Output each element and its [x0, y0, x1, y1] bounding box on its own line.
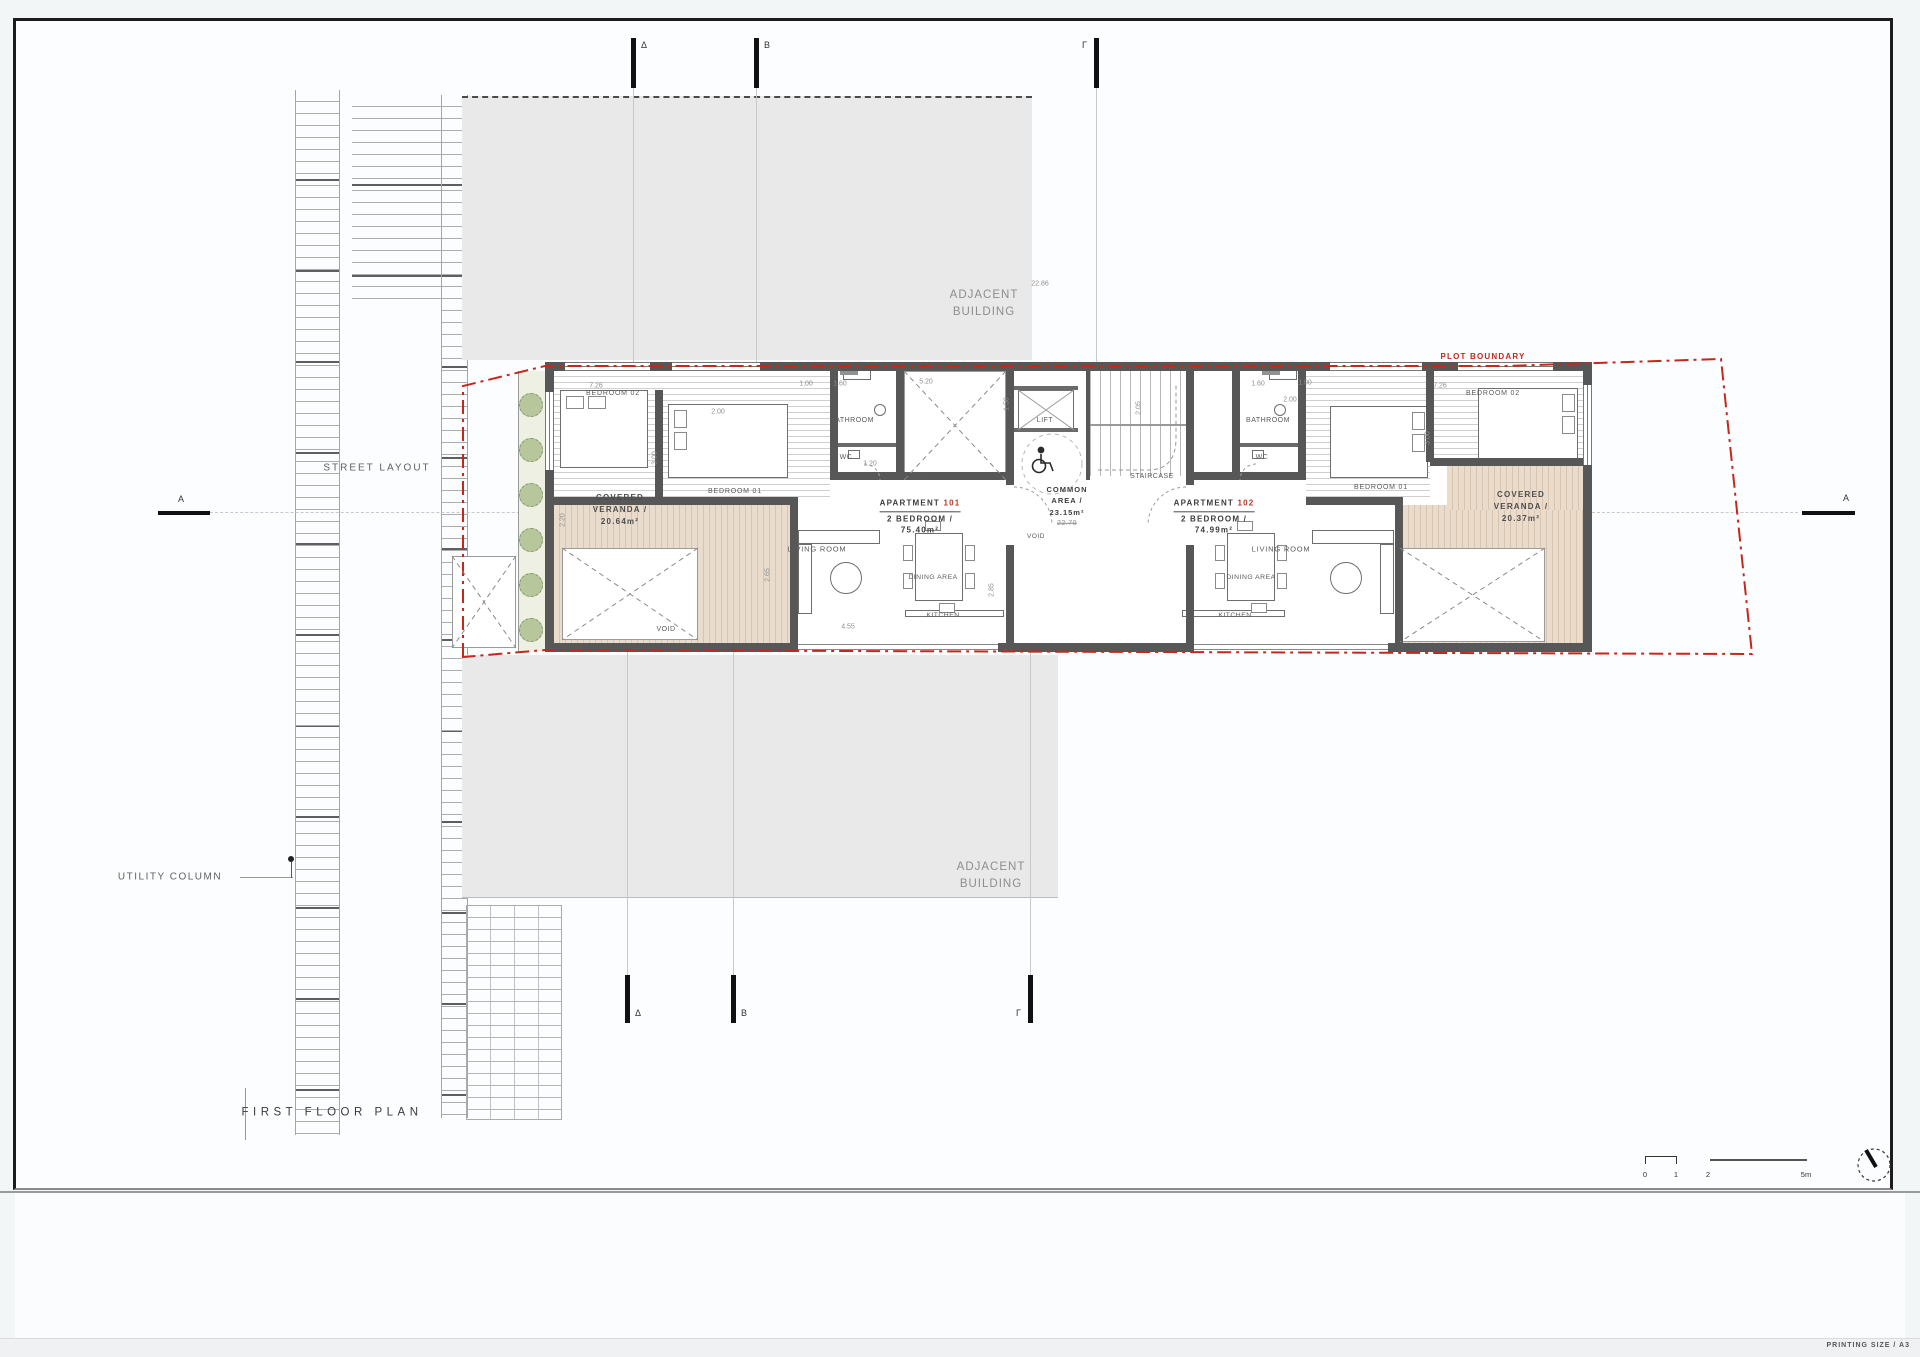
chair: [1215, 573, 1225, 589]
window: [565, 362, 650, 371]
sofa: [1380, 544, 1394, 614]
window: [1583, 385, 1592, 465]
apartment-102-prefix: APARTMENT: [1174, 498, 1234, 507]
chair: [965, 545, 975, 561]
wall-segment: [1006, 545, 1014, 652]
apartment-102-label: APARTMENT 102 2 BEDROOM / 74.99m²: [1174, 498, 1255, 535]
plan-title-tick: [245, 1088, 246, 1140]
wall-segment: [838, 472, 1014, 480]
printing-size-note: PRINTING SIZE / A3: [1810, 1342, 1910, 1349]
staircase-void-left: [904, 371, 1006, 480]
partition-wall: [1014, 428, 1078, 432]
glazed-front: [798, 644, 998, 650]
apartment-102-area: 74.99m²: [1174, 525, 1255, 536]
pillow: [674, 410, 687, 428]
kitchen-counter: [1182, 610, 1285, 617]
utility-column-stem: [291, 862, 292, 878]
wall-segment: [1430, 458, 1583, 466]
pillow: [1562, 394, 1575, 412]
plant-circle: [519, 528, 543, 552]
window: [672, 362, 760, 371]
section-line: [756, 88, 757, 362]
sink: [1274, 404, 1286, 416]
partition-wall: [838, 443, 896, 447]
veranda-right-upper: [1447, 465, 1583, 510]
wall-segment: [1388, 643, 1592, 652]
chair: [903, 545, 913, 561]
window: [545, 392, 554, 470]
wall-segment: [655, 390, 663, 505]
pillow: [588, 396, 606, 409]
wall-segment: [790, 500, 798, 652]
chair: [1251, 603, 1267, 613]
glazed-front: [1194, 644, 1388, 650]
window: [1458, 362, 1553, 371]
plant-circle: [519, 438, 543, 462]
wall-segment: [1306, 497, 1403, 505]
dining-table: [1227, 533, 1275, 601]
staircase-midline: [1090, 424, 1186, 426]
street-grid-left: [295, 90, 340, 1135]
plant-circle: [519, 483, 543, 507]
utility-column-leader: [240, 877, 293, 878]
toilet: [848, 450, 860, 459]
lift-cab: [1018, 390, 1074, 430]
pillow: [566, 396, 584, 409]
sofa: [798, 544, 812, 614]
wall-segment: [545, 497, 798, 505]
wall-segment: [1232, 362, 1240, 480]
section-line-a-right: [1592, 512, 1798, 513]
wall-segment: [545, 643, 798, 652]
drawing-page: PRINTING SIZE / A3 0125m APARTMENT 101 2…: [0, 0, 1920, 1357]
pillow: [1562, 416, 1575, 434]
section-line: [627, 652, 628, 975]
apartment-101-label: APARTMENT 101 2 BEDROOM / 75.40m²: [880, 498, 961, 535]
wall-segment: [1426, 371, 1434, 462]
wall-segment: [1194, 472, 1306, 480]
footer-panel: [15, 1193, 1905, 1338]
section-line: [1096, 88, 1097, 362]
section-line-a-left: [210, 512, 555, 513]
section-line: [733, 652, 734, 975]
wall-segment: [1006, 362, 1014, 485]
chair: [1215, 545, 1225, 561]
chair: [903, 573, 913, 589]
wall-segment: [1186, 545, 1194, 652]
round-table: [1330, 562, 1362, 594]
chair: [939, 603, 955, 613]
wall-segment: [1086, 371, 1090, 480]
sofa: [798, 530, 880, 544]
wall-segment: [1298, 362, 1306, 480]
chair: [965, 573, 975, 589]
void-entrance: [452, 556, 516, 648]
adjacent-building-top: [462, 96, 1032, 360]
apartment-101-area: 75.40m²: [880, 525, 961, 536]
footer-strip: [0, 1339, 1920, 1357]
chair: [1277, 545, 1287, 561]
section-line: [1030, 652, 1031, 975]
sink: [874, 404, 886, 416]
apartment-101-bedrooms: 2 BEDROOM /: [880, 514, 961, 525]
round-table: [830, 562, 862, 594]
apartment-102-number: 102: [1237, 498, 1254, 507]
pillow: [674, 432, 687, 450]
apartment-101-number: 101: [943, 498, 960, 507]
window: [1330, 362, 1422, 371]
void-right: [1400, 548, 1545, 642]
section-line: [633, 88, 634, 362]
dining-table: [915, 533, 963, 601]
plant-circle: [519, 573, 543, 597]
sofa: [1312, 530, 1394, 544]
apartment-101-prefix: APARTMENT: [880, 498, 940, 507]
street-grid-bottom: [466, 905, 562, 1120]
wall-segment: [998, 643, 1194, 652]
wall-segment: [1395, 500, 1403, 652]
void-left: [562, 548, 698, 640]
wall-segment: [896, 362, 904, 480]
wall-segment: [830, 362, 838, 480]
pillow: [1412, 434, 1425, 452]
adjacent-building-bottom: [462, 655, 1058, 898]
plant-circle: [519, 618, 543, 642]
plant-circle: [519, 393, 543, 417]
sheet-bottom-border: [0, 1191, 1920, 1193]
pillow: [1412, 412, 1425, 430]
partition-wall: [1014, 386, 1078, 390]
apartment-102-bedrooms: 2 BEDROOM /: [1174, 514, 1255, 525]
street-grid-top: [352, 95, 441, 305]
wall-segment: [1186, 362, 1194, 485]
chair: [1277, 573, 1287, 589]
partition-wall: [1240, 443, 1298, 447]
toilet: [1252, 450, 1264, 459]
